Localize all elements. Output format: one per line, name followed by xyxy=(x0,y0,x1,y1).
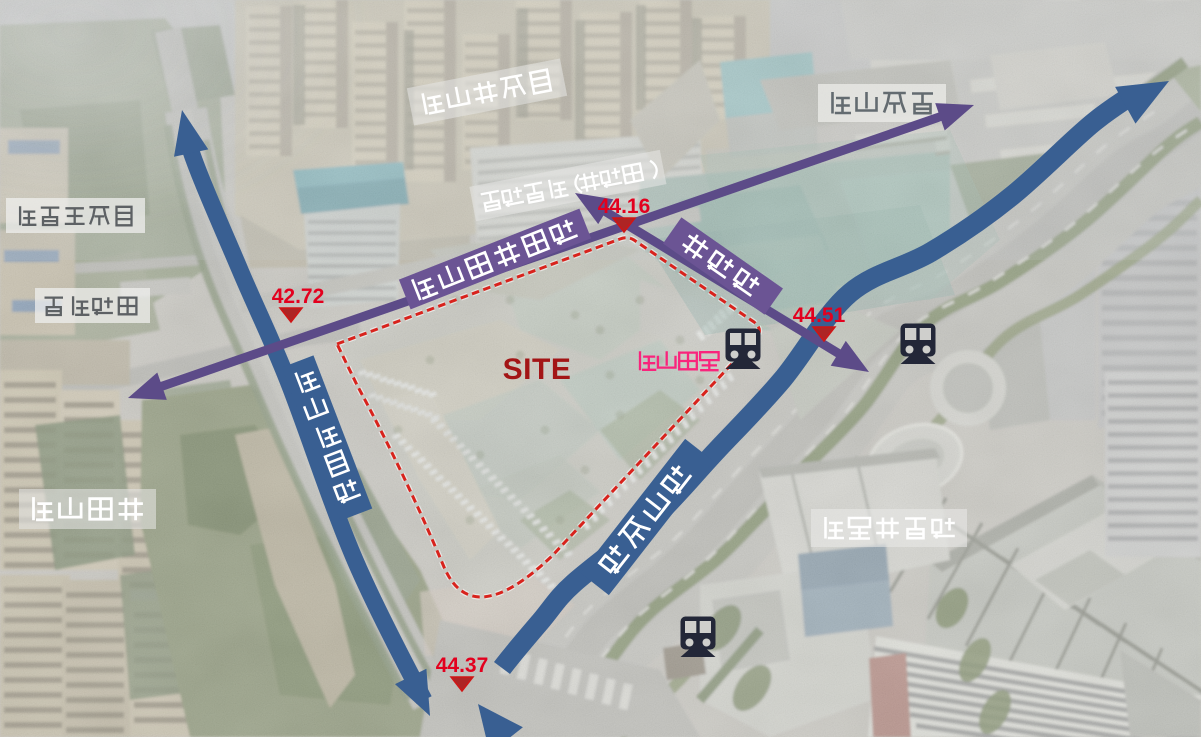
svg-text:44.37: 44.37 xyxy=(436,654,489,677)
svg-text:44.16: 44.16 xyxy=(598,195,651,218)
svg-text:44.51: 44.51 xyxy=(793,304,846,327)
svg-text:42.72: 42.72 xyxy=(272,285,325,308)
svg-text:SITE: SITE xyxy=(503,353,572,386)
